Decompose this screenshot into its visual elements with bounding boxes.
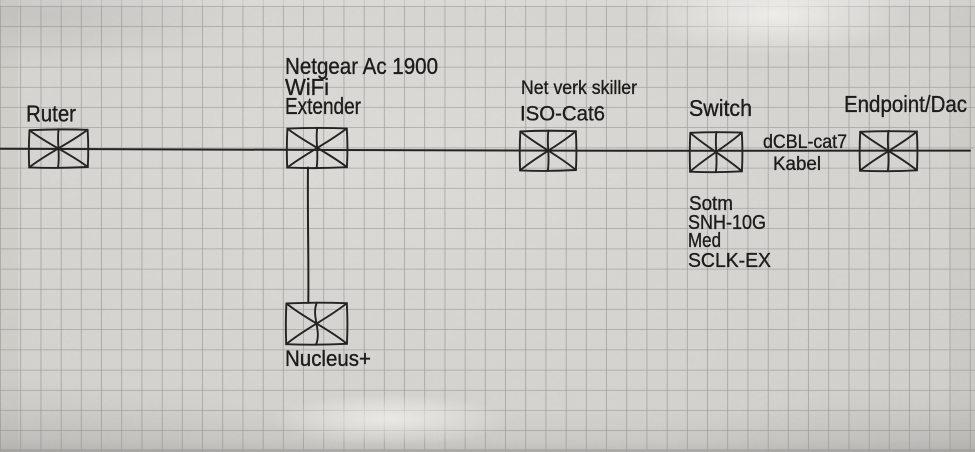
svg-text:ISO-Cat6: ISO-Cat6: [520, 103, 605, 126]
svg-text:SCLK-EX: SCLK-EX: [688, 250, 771, 272]
svg-text:Endpoint/Dac: Endpoint/Dac: [844, 91, 967, 117]
svg-text:dCBL-cat7: dCBL-cat7: [763, 132, 847, 153]
svg-text:Net verk skiller: Net verk skiller: [521, 78, 638, 99]
svg-text:Switch: Switch: [689, 95, 752, 121]
svg-text:Med: Med: [688, 230, 721, 252]
svg-text:Extender: Extender: [285, 93, 361, 119]
svg-text:Kabel: Kabel: [773, 154, 821, 175]
svg-text:Nucleus+: Nucleus+: [285, 346, 371, 371]
svg-text:Ruter: Ruter: [26, 101, 76, 127]
